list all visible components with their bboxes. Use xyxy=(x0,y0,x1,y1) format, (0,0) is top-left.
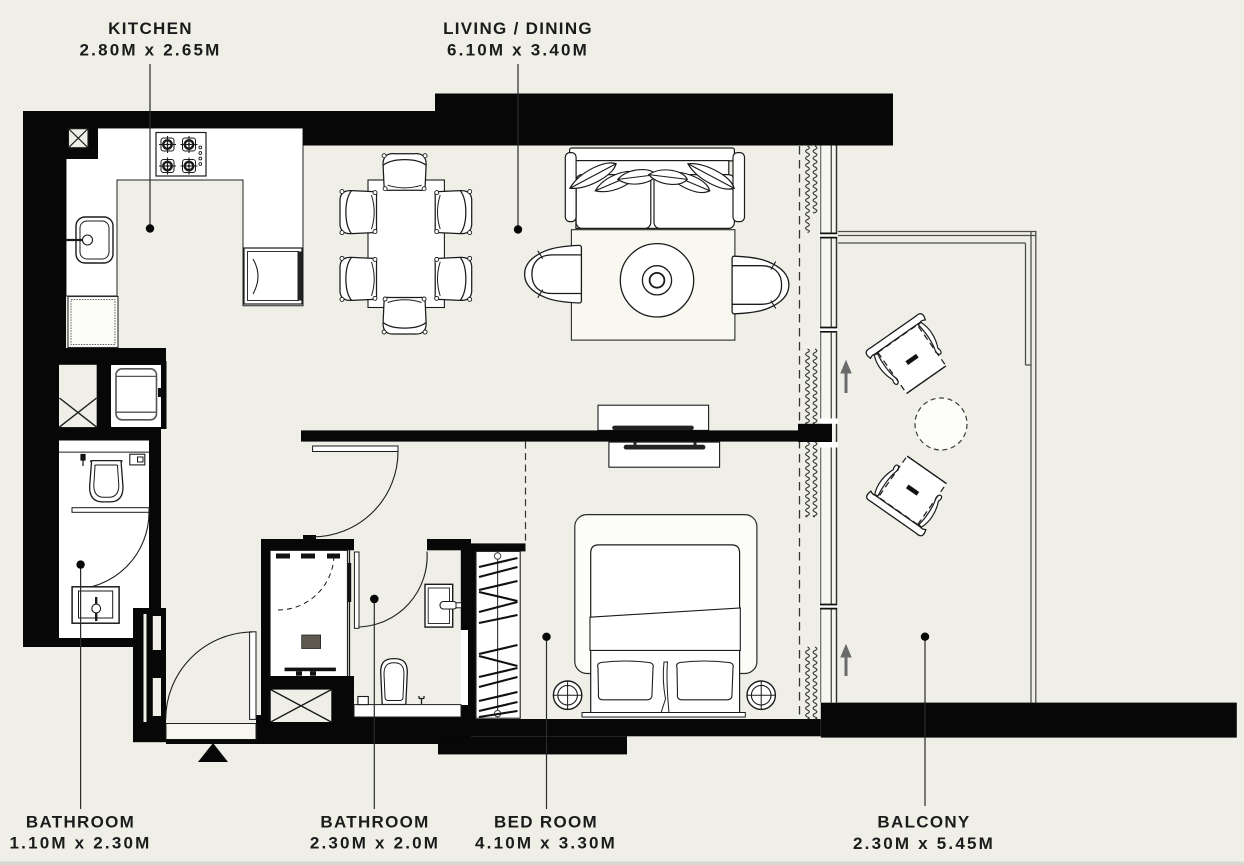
svg-text:LIVING / DINING: LIVING / DINING xyxy=(443,19,593,38)
svg-text:2.30M x 2.0M: 2.30M x 2.0M xyxy=(310,834,440,853)
svg-text:BALCONY: BALCONY xyxy=(877,812,970,831)
svg-text:1.10M x 2.30M: 1.10M x 2.30M xyxy=(10,834,152,853)
svg-text:BED ROOM: BED ROOM xyxy=(494,812,598,831)
svg-text:4.10M x 3.30M: 4.10M x 3.30M xyxy=(475,834,617,853)
svg-text:KITCHEN: KITCHEN xyxy=(108,19,193,38)
svg-text:2.30M x 5.45M: 2.30M x 5.45M xyxy=(853,834,995,853)
svg-text:BATHROOM: BATHROOM xyxy=(320,812,429,831)
svg-text:2.80M x 2.65M: 2.80M x 2.65M xyxy=(80,41,222,60)
svg-text:6.10M x 3.40M: 6.10M x 3.40M xyxy=(447,41,589,60)
svg-text:BATHROOM: BATHROOM xyxy=(26,812,135,831)
